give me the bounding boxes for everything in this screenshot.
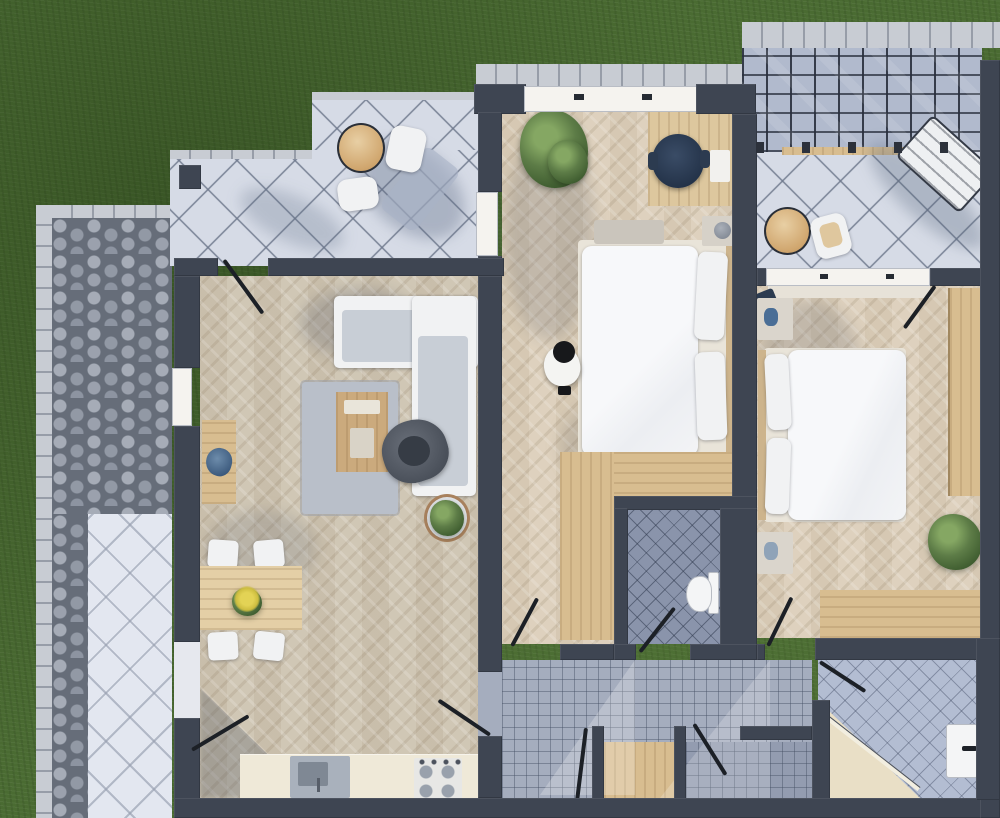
l-shaped-wardrobe-side xyxy=(560,452,614,640)
window-bedroom-1-top xyxy=(524,86,698,112)
table-lamp xyxy=(714,222,731,239)
window-handle xyxy=(820,274,828,279)
duvet-2 xyxy=(788,350,906,520)
bathroom-vanity xyxy=(946,724,978,778)
toilet-bowl xyxy=(686,576,712,612)
coffee-table-tray xyxy=(344,400,380,414)
curb-left xyxy=(36,205,52,818)
office-chair-arm xyxy=(700,150,710,168)
northeast-edge-band xyxy=(742,22,1000,48)
window-handle xyxy=(574,94,584,100)
dining-chair xyxy=(207,631,238,661)
plant-bedroom-1-lobe xyxy=(548,140,588,184)
plant-foliage xyxy=(430,500,464,536)
dresser-bench xyxy=(820,590,982,638)
southwest-terrace xyxy=(88,514,172,818)
pillow xyxy=(765,438,792,515)
wall xyxy=(592,726,604,800)
outdoor-round-table-ne xyxy=(764,207,811,255)
outdoor-round-table-nw xyxy=(337,123,385,173)
doorway-living-terrace-sw xyxy=(174,642,200,718)
wall xyxy=(690,644,757,660)
wall xyxy=(474,84,526,114)
pillow xyxy=(764,353,792,430)
office-chair xyxy=(652,134,704,188)
wall xyxy=(614,644,636,660)
window-bench xyxy=(768,286,930,298)
dining-chair xyxy=(253,631,286,662)
terrace-planter xyxy=(179,165,201,189)
vanity-faucet xyxy=(962,746,977,751)
nightstand-decor xyxy=(764,308,778,326)
wall xyxy=(815,638,985,660)
person-bag xyxy=(558,386,571,395)
office-chair-arm xyxy=(648,152,658,170)
pergola-post xyxy=(802,142,810,153)
wall-wc-right xyxy=(720,508,757,648)
armchair-seat xyxy=(398,436,430,466)
sink-faucet xyxy=(317,778,320,792)
paver-walkway-wide xyxy=(52,218,172,514)
coffee-table-book xyxy=(350,428,374,458)
wall xyxy=(174,276,200,368)
pergola-post xyxy=(756,142,764,153)
wall xyxy=(174,426,200,642)
floor-plan-canvas xyxy=(0,0,1000,818)
wc-floor xyxy=(628,508,720,644)
wall-bottom xyxy=(174,798,1000,818)
dining-chair xyxy=(207,539,239,569)
dining-chair xyxy=(253,539,285,570)
pillow xyxy=(694,251,729,340)
wall xyxy=(930,268,985,286)
wall xyxy=(478,112,502,192)
pillow xyxy=(694,352,727,441)
flower-centerpiece xyxy=(234,586,260,612)
desk-pad xyxy=(710,150,730,182)
wall-living-hall xyxy=(478,276,502,672)
wall xyxy=(174,718,200,802)
bench-bed-1 xyxy=(594,220,664,244)
wall xyxy=(740,726,812,740)
paver-walkway-narrow xyxy=(52,514,88,818)
outdoor-chair xyxy=(336,175,380,212)
pergola-post xyxy=(940,142,948,153)
window-living-left xyxy=(172,368,192,426)
curb-top xyxy=(52,205,172,218)
pergola-post xyxy=(848,142,856,153)
wall xyxy=(268,258,504,276)
wall xyxy=(478,736,502,798)
sink-basin xyxy=(298,762,328,786)
wall-bedrooms-divider xyxy=(732,114,757,508)
plant-bedroom-2 xyxy=(928,514,982,570)
pergola-post xyxy=(894,142,902,153)
wall xyxy=(674,726,686,800)
wall xyxy=(174,258,218,276)
duvet-1 xyxy=(582,246,698,456)
wall-wc-left xyxy=(614,508,628,648)
person-head xyxy=(553,341,575,363)
terrace-curb xyxy=(170,150,312,159)
wall xyxy=(696,84,756,114)
window-handle xyxy=(642,94,652,100)
wardrobe-bedroom-2 xyxy=(948,288,982,496)
wall-bathroom-left xyxy=(812,700,830,800)
terrace-door-bedroom-1 xyxy=(476,192,498,256)
nightstand-decor xyxy=(764,542,778,560)
wall-right-lower xyxy=(976,638,1000,800)
wall xyxy=(560,644,614,660)
cooktop-4-burner xyxy=(414,758,462,800)
window-handle xyxy=(886,274,894,279)
wall xyxy=(757,644,765,660)
window-bedroom-2 xyxy=(766,268,930,286)
